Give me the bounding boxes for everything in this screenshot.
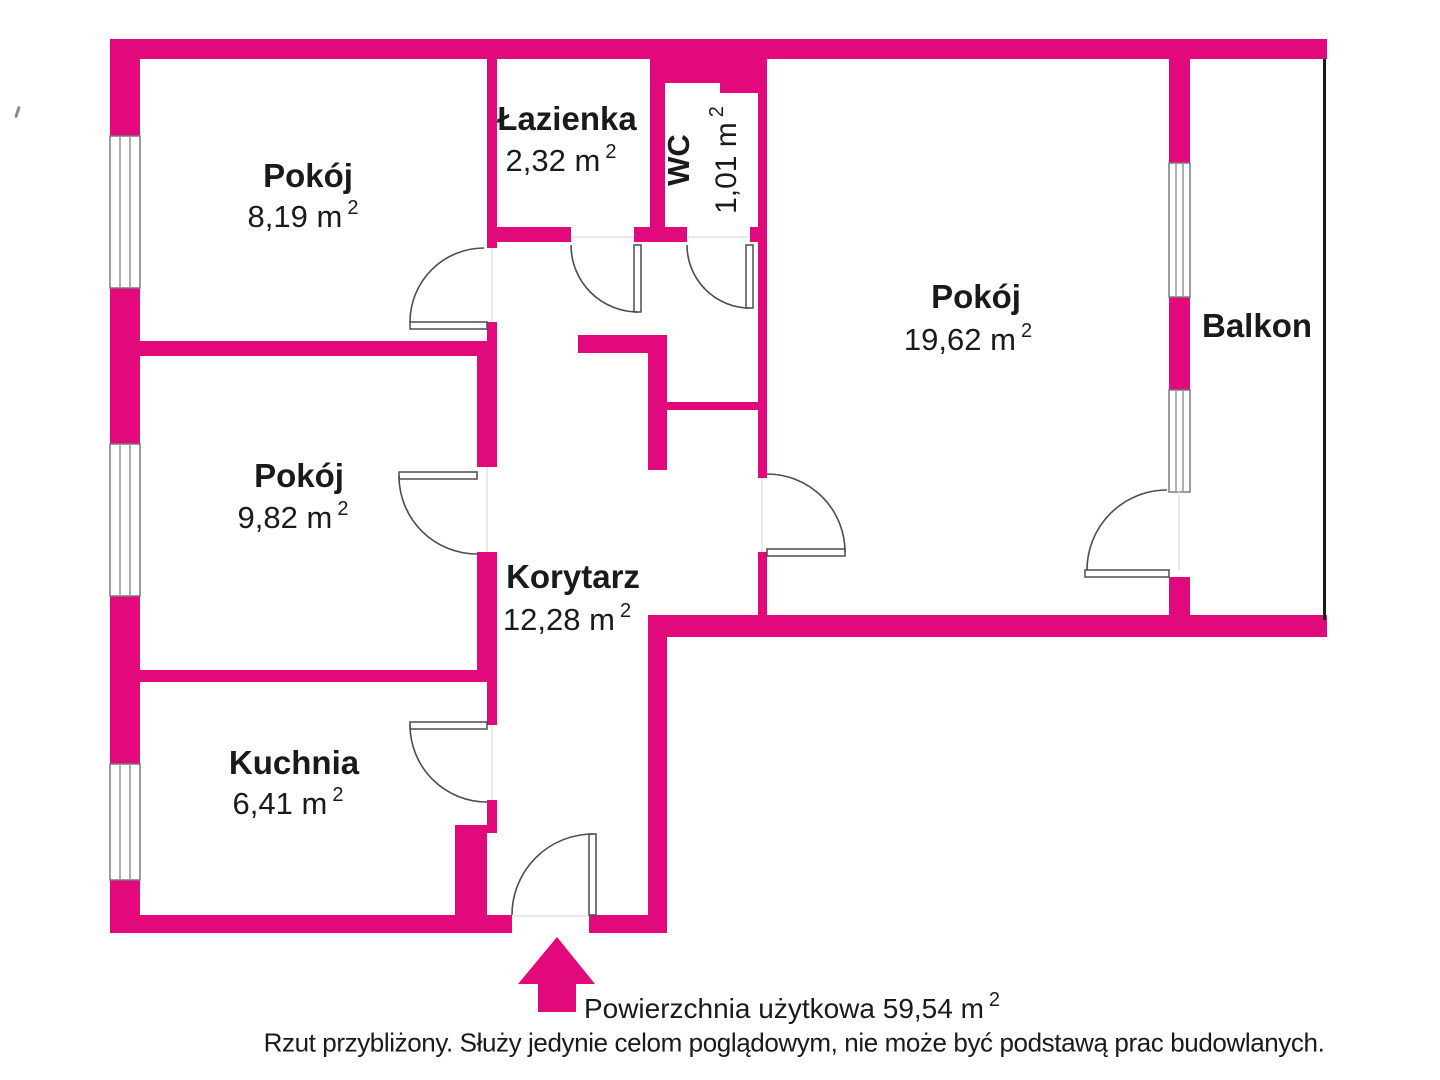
- door-leaf-bathroom: [634, 245, 641, 312]
- entrance-arrow-head: [518, 937, 595, 984]
- room-label-kitchen: Kuchnia: [229, 744, 359, 782]
- wall-wc-top: [663, 59, 758, 83]
- room-area-corridor: 12,28 m2: [503, 602, 631, 638]
- wall-corridor-bigroom-upper: [758, 59, 767, 478]
- wall-room1-bathroom: [487, 59, 497, 248]
- door-leaf-room1: [410, 322, 487, 329]
- entrance-arrow-stem: [538, 983, 576, 1012]
- wall-outer-bottom-right: [648, 615, 1327, 637]
- wall-divider-room2-kitchen: [110, 670, 497, 682]
- room-label-bigroom: Pokój: [931, 278, 1021, 316]
- wall-wc-bottom: [665, 227, 687, 242]
- room-area-kitchen: 6,41 m2: [233, 786, 344, 822]
- disclaimer-text: Rzut przybliżony. Służy jedynie celom po…: [264, 1028, 1325, 1059]
- window-kitchen: [110, 764, 140, 880]
- wall-corridor-l-vertical: [648, 353, 667, 470]
- wall-room1-hinge-stub: [487, 322, 497, 341]
- door-arc-wc: [687, 245, 750, 308]
- wall-wc-top-step: [720, 83, 758, 93]
- door-arc-room1: [410, 248, 484, 322]
- door-arc-kitchen: [410, 725, 487, 802]
- room-area-wc: 1,01 m2: [699, 106, 747, 214]
- wall-wc-bottom-hinge: [750, 227, 758, 242]
- balcony-outline: [1323, 59, 1326, 620]
- wall-outer-top: [110, 39, 1327, 59]
- wall-kitchen-corridor-upper: [487, 682, 497, 725]
- door-leaf-balcony: [1085, 570, 1169, 577]
- door-arc-room2: [399, 476, 477, 554]
- room-area-bigroom: 19,62 m2: [904, 322, 1032, 358]
- wall-wc-nook: [667, 402, 758, 410]
- room-area-room2: 9,82 m2: [238, 500, 349, 536]
- window-room1: [110, 136, 140, 288]
- door-arc-balcony: [1087, 490, 1167, 570]
- door-arc-bigroom: [767, 474, 845, 552]
- total-area-text: Powierzchnia użytkowa 59,54 m2: [584, 991, 1000, 1025]
- room-area-bathroom: 2,32 m2: [506, 143, 617, 179]
- wall-room2-corridor-lower: [477, 552, 497, 670]
- wall-corridor-l-horizontal: [578, 335, 667, 353]
- door-arc-entrance: [512, 834, 593, 915]
- wall-kitchen-corridor-lower: [487, 800, 497, 833]
- room-label-balcony: Balkon: [1202, 307, 1312, 345]
- window-room2: [110, 444, 140, 596]
- door-leaf-room2: [399, 472, 477, 479]
- door-leaf-kitchen: [410, 722, 487, 729]
- wall-outer-bottom-left: [110, 915, 512, 933]
- door-leaf-bigroom: [767, 549, 845, 556]
- door-leaf-entrance: [589, 834, 596, 915]
- room-label-room1: Pokój: [263, 157, 353, 195]
- wall-divider-room1-room2: [110, 341, 497, 356]
- wall-kitchen-entry-block: [455, 825, 487, 915]
- room-label-corridor: Korytarz: [506, 558, 640, 596]
- wall-corridor-bigroom-lower: [758, 552, 767, 637]
- door-leaf-wc: [746, 245, 753, 308]
- floor-plan: Pokój 8,19 m2 Łazienka 2,32 m2 WC 1,01 m…: [0, 0, 1440, 1080]
- wall-bathroom-bottom-hinge: [634, 227, 665, 242]
- room-label-wc: WC 1,01 m2: [659, 106, 747, 214]
- window-balcony-lower: [1169, 390, 1190, 492]
- door-arc-bathroom: [571, 245, 638, 312]
- room-area-room1: 8,19 m2: [248, 199, 359, 235]
- room-label-bathroom: Łazienka: [497, 100, 636, 138]
- room-label-room2: Pokój: [254, 457, 344, 495]
- wall-corridor-right-lower: [648, 615, 667, 933]
- wall-room2-corridor-upper: [477, 341, 497, 467]
- wall-bathroom-bottom: [497, 227, 571, 242]
- window-balcony-upper: [1169, 163, 1190, 297]
